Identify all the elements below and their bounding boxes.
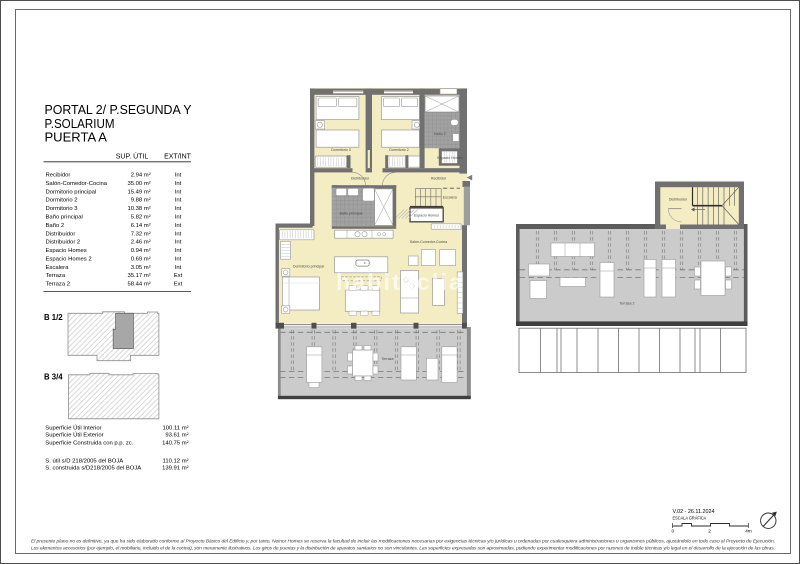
svg-text:100.11 m²: 100.11 m²	[163, 425, 189, 431]
svg-text:3.05 m²: 3.05 m²	[131, 265, 151, 271]
svg-text:habitaclia: habitaclia	[336, 269, 464, 295]
svg-text:SUP. ÚTIL: SUP. ÚTIL	[116, 152, 149, 161]
svg-text:Dormitorio 2: Dormitorio 2	[46, 198, 78, 204]
svg-text:2.46 m²: 2.46 m²	[131, 240, 151, 246]
svg-text:58.44 m²: 58.44 m²	[127, 282, 150, 288]
svg-text:0: 0	[672, 529, 675, 534]
svg-text:15.49 m²: 15.49 m²	[127, 189, 150, 195]
svg-text:Espacio Homes 2: Espacio Homes 2	[46, 256, 92, 262]
svg-text:S. útil s/D 218/2005 del BOJA: S. útil s/D 218/2005 del BOJA	[45, 458, 123, 464]
svg-text:Escalera: Escalera	[46, 265, 70, 271]
svg-text:9.88 m²: 9.88 m²	[131, 198, 151, 204]
svg-text:Int: Int	[175, 189, 182, 195]
svg-text:2.94 m²: 2.94 m²	[131, 173, 151, 179]
svg-text:139.91 m²: 139.91 m²	[162, 466, 189, 472]
svg-text:Distribuidor: Distribuidor	[46, 231, 76, 237]
svg-text:Ext: Ext	[174, 282, 183, 288]
svg-text:Int: Int	[175, 240, 182, 246]
svg-text:0.94 m²: 0.94 m²	[131, 248, 151, 254]
svg-text:Int: Int	[175, 256, 182, 262]
svg-text:Baño 2: Baño 2	[434, 132, 445, 136]
svg-text:El presente plano no es defini: El presente plano no es definitivo, ya q…	[31, 539, 775, 545]
svg-text:Espacio Homes: Espacio Homes	[46, 248, 87, 254]
svg-text:Int: Int	[175, 231, 182, 237]
svg-text:Superficie Construida con p.p.: Superficie Construida con p.p. zc.	[45, 440, 133, 446]
svg-text:Dormitorio 3: Dormitorio 3	[46, 206, 79, 212]
svg-text:Distribuidor: Distribuidor	[351, 176, 370, 180]
svg-text:Baño 2: Baño 2	[46, 223, 65, 229]
svg-text:Salón-Comedor-Cocina: Salón-Comedor-Cocina	[410, 240, 448, 244]
svg-text:B 3/4: B 3/4	[44, 373, 63, 382]
svg-text:B 1/2: B 1/2	[44, 313, 63, 322]
svg-text:7.32 m²: 7.32 m²	[131, 231, 151, 237]
svg-text:PUERTA A: PUERTA A	[45, 130, 108, 145]
svg-text:Superficie Útil Exterior: Superficie Útil Exterior	[45, 432, 103, 439]
svg-text:Superficie Útil Interior: Superficie Útil Interior	[45, 424, 101, 431]
svg-text:Espacio Homes: Espacio Homes	[437, 156, 462, 160]
svg-text:Baño principal: Baño principal	[340, 212, 363, 216]
svg-text:Int: Int	[175, 198, 182, 204]
svg-text:V.02 - 26.11.2024: V.02 - 26.11.2024	[673, 509, 715, 515]
svg-text:4m: 4m	[745, 529, 752, 534]
svg-text:Terraza: Terraza	[382, 357, 394, 361]
svg-text:PORTAL 2/ P.SEGUNDA Y: PORTAL 2/ P.SEGUNDA Y	[45, 102, 192, 117]
svg-text:Int: Int	[175, 215, 182, 221]
svg-text:Terraza 2: Terraza 2	[46, 282, 71, 288]
svg-text:140.75 m²: 140.75 m²	[162, 440, 189, 446]
svg-text:Baño principal: Baño principal	[46, 215, 83, 221]
svg-text:5.82 m²: 5.82 m²	[131, 215, 151, 221]
svg-text:Int: Int	[175, 181, 182, 187]
svg-text:Dormitorio principal: Dormitorio principal	[46, 189, 97, 195]
svg-text:Int: Int	[175, 173, 182, 179]
svg-text:35.17 m²: 35.17 m²	[127, 273, 150, 279]
svg-text:Distribuidor 2: Distribuidor 2	[46, 240, 81, 246]
svg-text:93.61 m²: 93.61 m²	[165, 433, 188, 439]
svg-text:Dormitorio principal: Dormitorio principal	[293, 264, 324, 268]
svg-text:Int: Int	[175, 265, 182, 271]
svg-text:Los elementos accesorios (por: Los elementos accesorios (por ejemplo, e…	[31, 546, 775, 552]
svg-text:110.12 m²: 110.12 m²	[163, 458, 189, 464]
svg-text:Distribuidor: Distribuidor	[669, 198, 688, 202]
svg-text:Terraza 2: Terraza 2	[620, 302, 635, 306]
svg-text:2: 2	[708, 529, 711, 534]
svg-text:Salón-Comedor-Cocina: Salón-Comedor-Cocina	[46, 181, 108, 187]
svg-text:S. construida s/D218/2005 del: S. construida s/D218/2005 del BOJA	[45, 466, 141, 472]
svg-text:Ext: Ext	[174, 273, 183, 279]
svg-text:EXT/INT: EXT/INT	[164, 154, 192, 161]
svg-text:Espacio Homes: Espacio Homes	[414, 213, 439, 217]
svg-text:Recibidor: Recibidor	[431, 176, 447, 180]
svg-text:Int: Int	[175, 248, 182, 254]
svg-text:35.00 m²: 35.00 m²	[127, 181, 150, 187]
svg-text:Int: Int	[175, 206, 182, 212]
svg-text:ESCALA GRÁFICA: ESCALA GRÁFICA	[673, 515, 708, 521]
svg-text:0.69 m²: 0.69 m²	[131, 256, 151, 262]
svg-text:Recibidor: Recibidor	[46, 173, 71, 179]
svg-text:Terraza: Terraza	[46, 273, 66, 279]
svg-text:Dormitorio 3: Dormitorio 3	[331, 148, 351, 152]
svg-text:Int: Int	[175, 223, 182, 229]
svg-text:10.38 m²: 10.38 m²	[127, 206, 150, 212]
svg-text:6.14 m²: 6.14 m²	[131, 223, 151, 229]
svg-text:Dormitorio 2: Dormitorio 2	[389, 148, 409, 152]
svg-text:Escalera: Escalera	[443, 195, 457, 199]
